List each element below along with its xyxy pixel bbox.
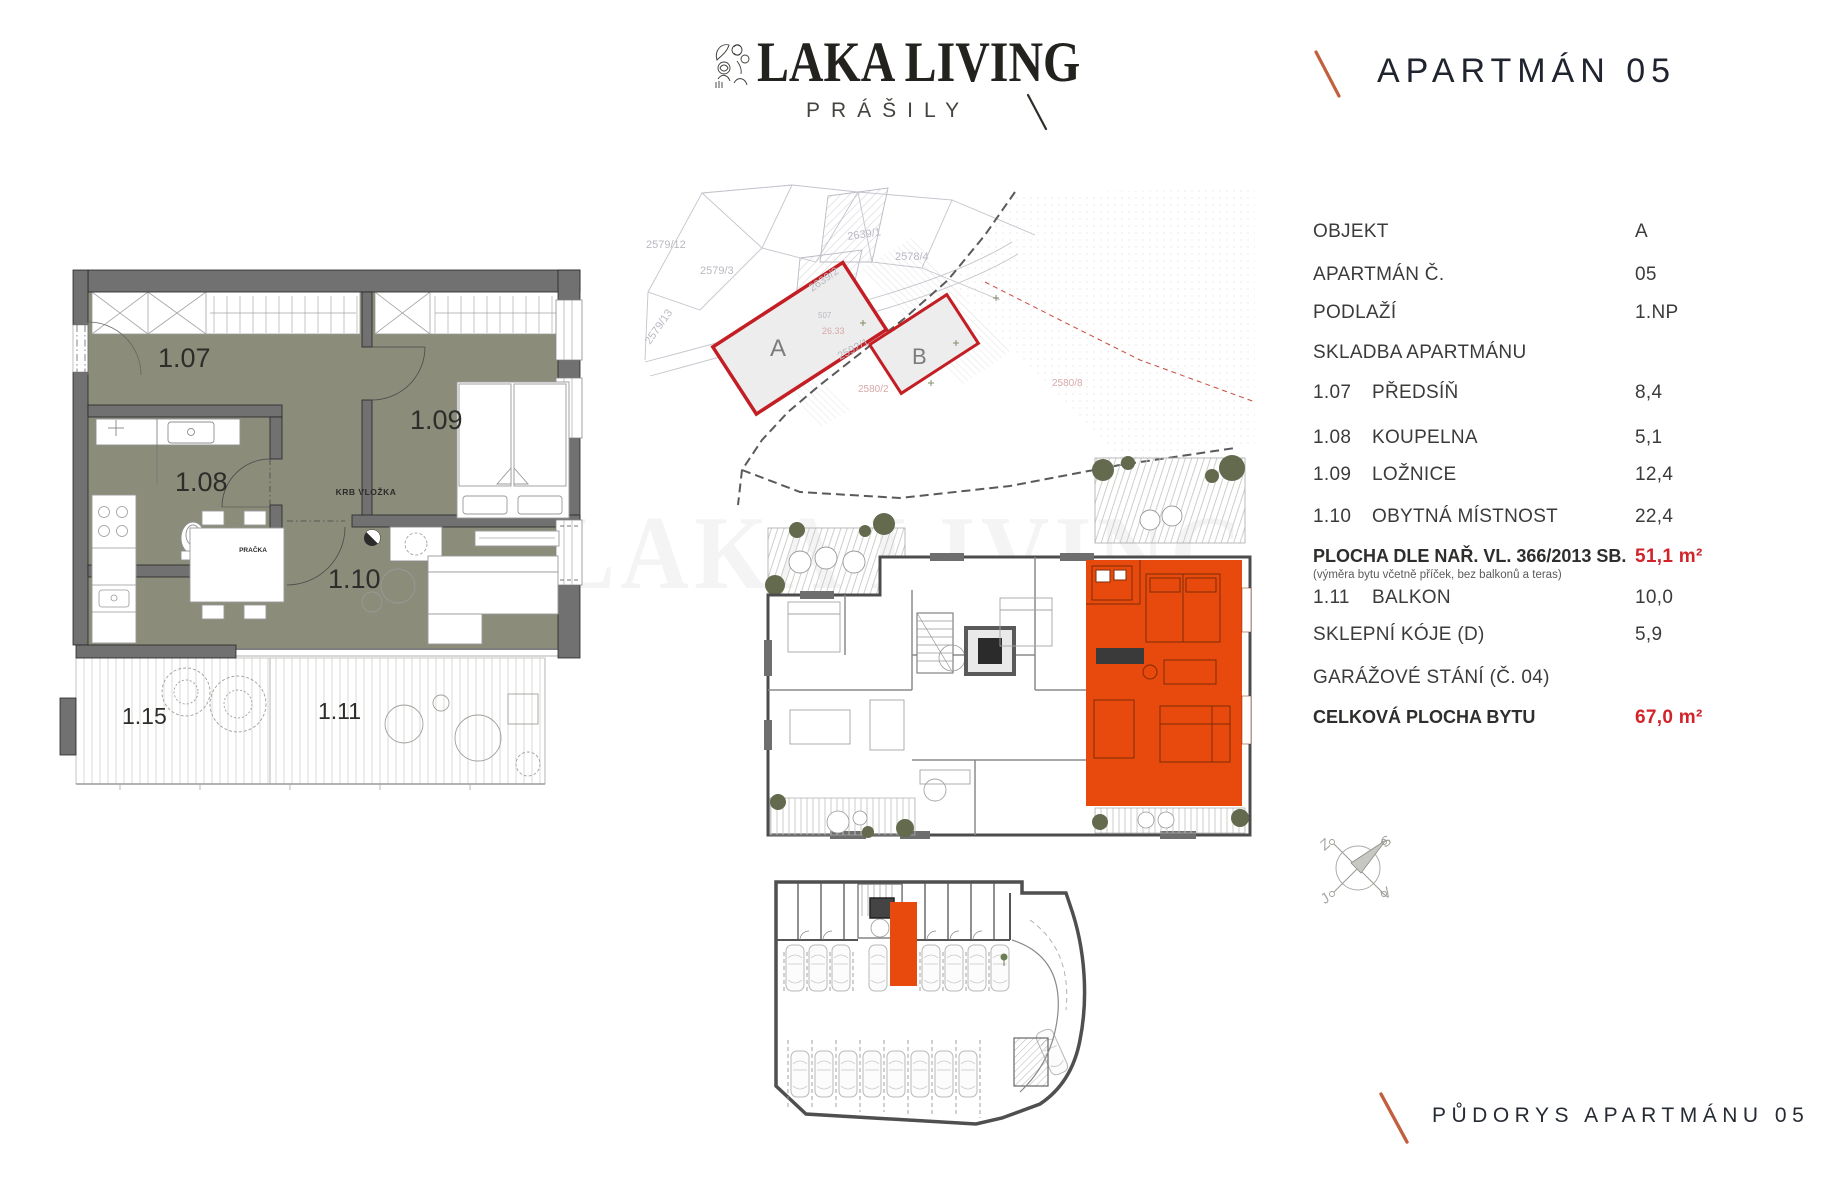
fireplace-label: KRB VLOŽKA bbox=[336, 486, 397, 497]
brand-slash-icon bbox=[1024, 92, 1050, 132]
table-row: PODLAŽÍ1.NP bbox=[1313, 302, 1813, 328]
table-row: OBJEKTA bbox=[1313, 221, 1813, 247]
table-row: 1.10OBYTNÁ MÍSTNOST22,4 bbox=[1313, 506, 1813, 532]
room-label-1-09: 1.09 bbox=[410, 405, 463, 435]
room-label-1-11: 1.11 bbox=[318, 698, 361, 724]
table-row: 1.09LOŽNICE12,4 bbox=[1313, 464, 1813, 490]
table-row-total-area: CELKOVÁ PLOCHA BYTU67,0 m² bbox=[1313, 707, 1813, 733]
compass-east-label: V bbox=[1377, 883, 1396, 902]
building-a-area: 26.33 bbox=[822, 326, 845, 336]
table-row: SKLEPNÍ KÓJE (D)5,9 bbox=[1313, 624, 1813, 650]
garage-plan bbox=[640, 862, 1110, 1188]
page-title: APARTMÁN 05 bbox=[1377, 52, 1676, 91]
building-floor-plan bbox=[640, 440, 1260, 845]
parcel-label: 507 bbox=[818, 311, 832, 320]
footer-slash-icon bbox=[1376, 1090, 1412, 1146]
table-row: 1.07PŘEDSÍŇ8,4 bbox=[1313, 382, 1813, 408]
brand-logo-icon bbox=[712, 41, 754, 89]
parcel-label: 2580/8 bbox=[1052, 378, 1083, 389]
parcel-label: 2578/4 bbox=[895, 251, 929, 263]
highlighted-parking-space bbox=[890, 902, 917, 986]
table-row: GARÁŽOVÉ STÁNÍ (Č. 04) bbox=[1313, 667, 1813, 693]
brand-subtitle: PRÁŠILY bbox=[806, 99, 970, 123]
room-label-1-08: 1.08 bbox=[175, 467, 228, 497]
plan-sheet: LAKA LIVING LAKA LIVING PRÁŠILY APARTMÁN… bbox=[0, 0, 1836, 1190]
brand-name: LAKA LIVING bbox=[757, 30, 1080, 95]
compass-needle bbox=[1351, 840, 1386, 873]
building-b-label: B bbox=[912, 344, 927, 369]
table-row-area-law: PLOCHA DLE NAŘ. VL. 366/2013 SB.51,1 m²(… bbox=[1313, 546, 1813, 572]
parcel-label: 2579/13 bbox=[643, 307, 676, 346]
table-row: APARTMÁN Č.05 bbox=[1313, 264, 1813, 290]
parcel-label: 2579/12 bbox=[646, 239, 686, 251]
area-note: (výměra bytu včetně příček, bez balkonů … bbox=[1313, 569, 1562, 581]
room-label-1-10: 1.10 bbox=[328, 564, 381, 594]
parcel-label: 2580/2 bbox=[858, 384, 889, 395]
washer-label: PRAČKA bbox=[239, 545, 267, 554]
parcel-label: 2579/3 bbox=[700, 265, 734, 277]
building-a-label: A bbox=[770, 335, 786, 362]
table-row: 1.08KOUPELNA5,1 bbox=[1313, 427, 1813, 453]
table-row: SKLADBA APARTMÁNU bbox=[1313, 342, 1813, 368]
footer-caption: PŮDORYS APARTMÁNU 05 bbox=[1432, 1104, 1809, 1128]
main-floor-plan: 1.07 1.08 1.09 1.10 1.11 1.15 PRAČKA KRB… bbox=[55, 225, 590, 800]
table-row: 1.11BALKON10,0 bbox=[1313, 587, 1813, 613]
header-slash-icon bbox=[1310, 48, 1344, 100]
compass-rose: S V J Z bbox=[1316, 818, 1412, 920]
room-label-1-15: 1.15 bbox=[122, 703, 167, 729]
room-label-1-07: 1.07 bbox=[158, 343, 211, 373]
